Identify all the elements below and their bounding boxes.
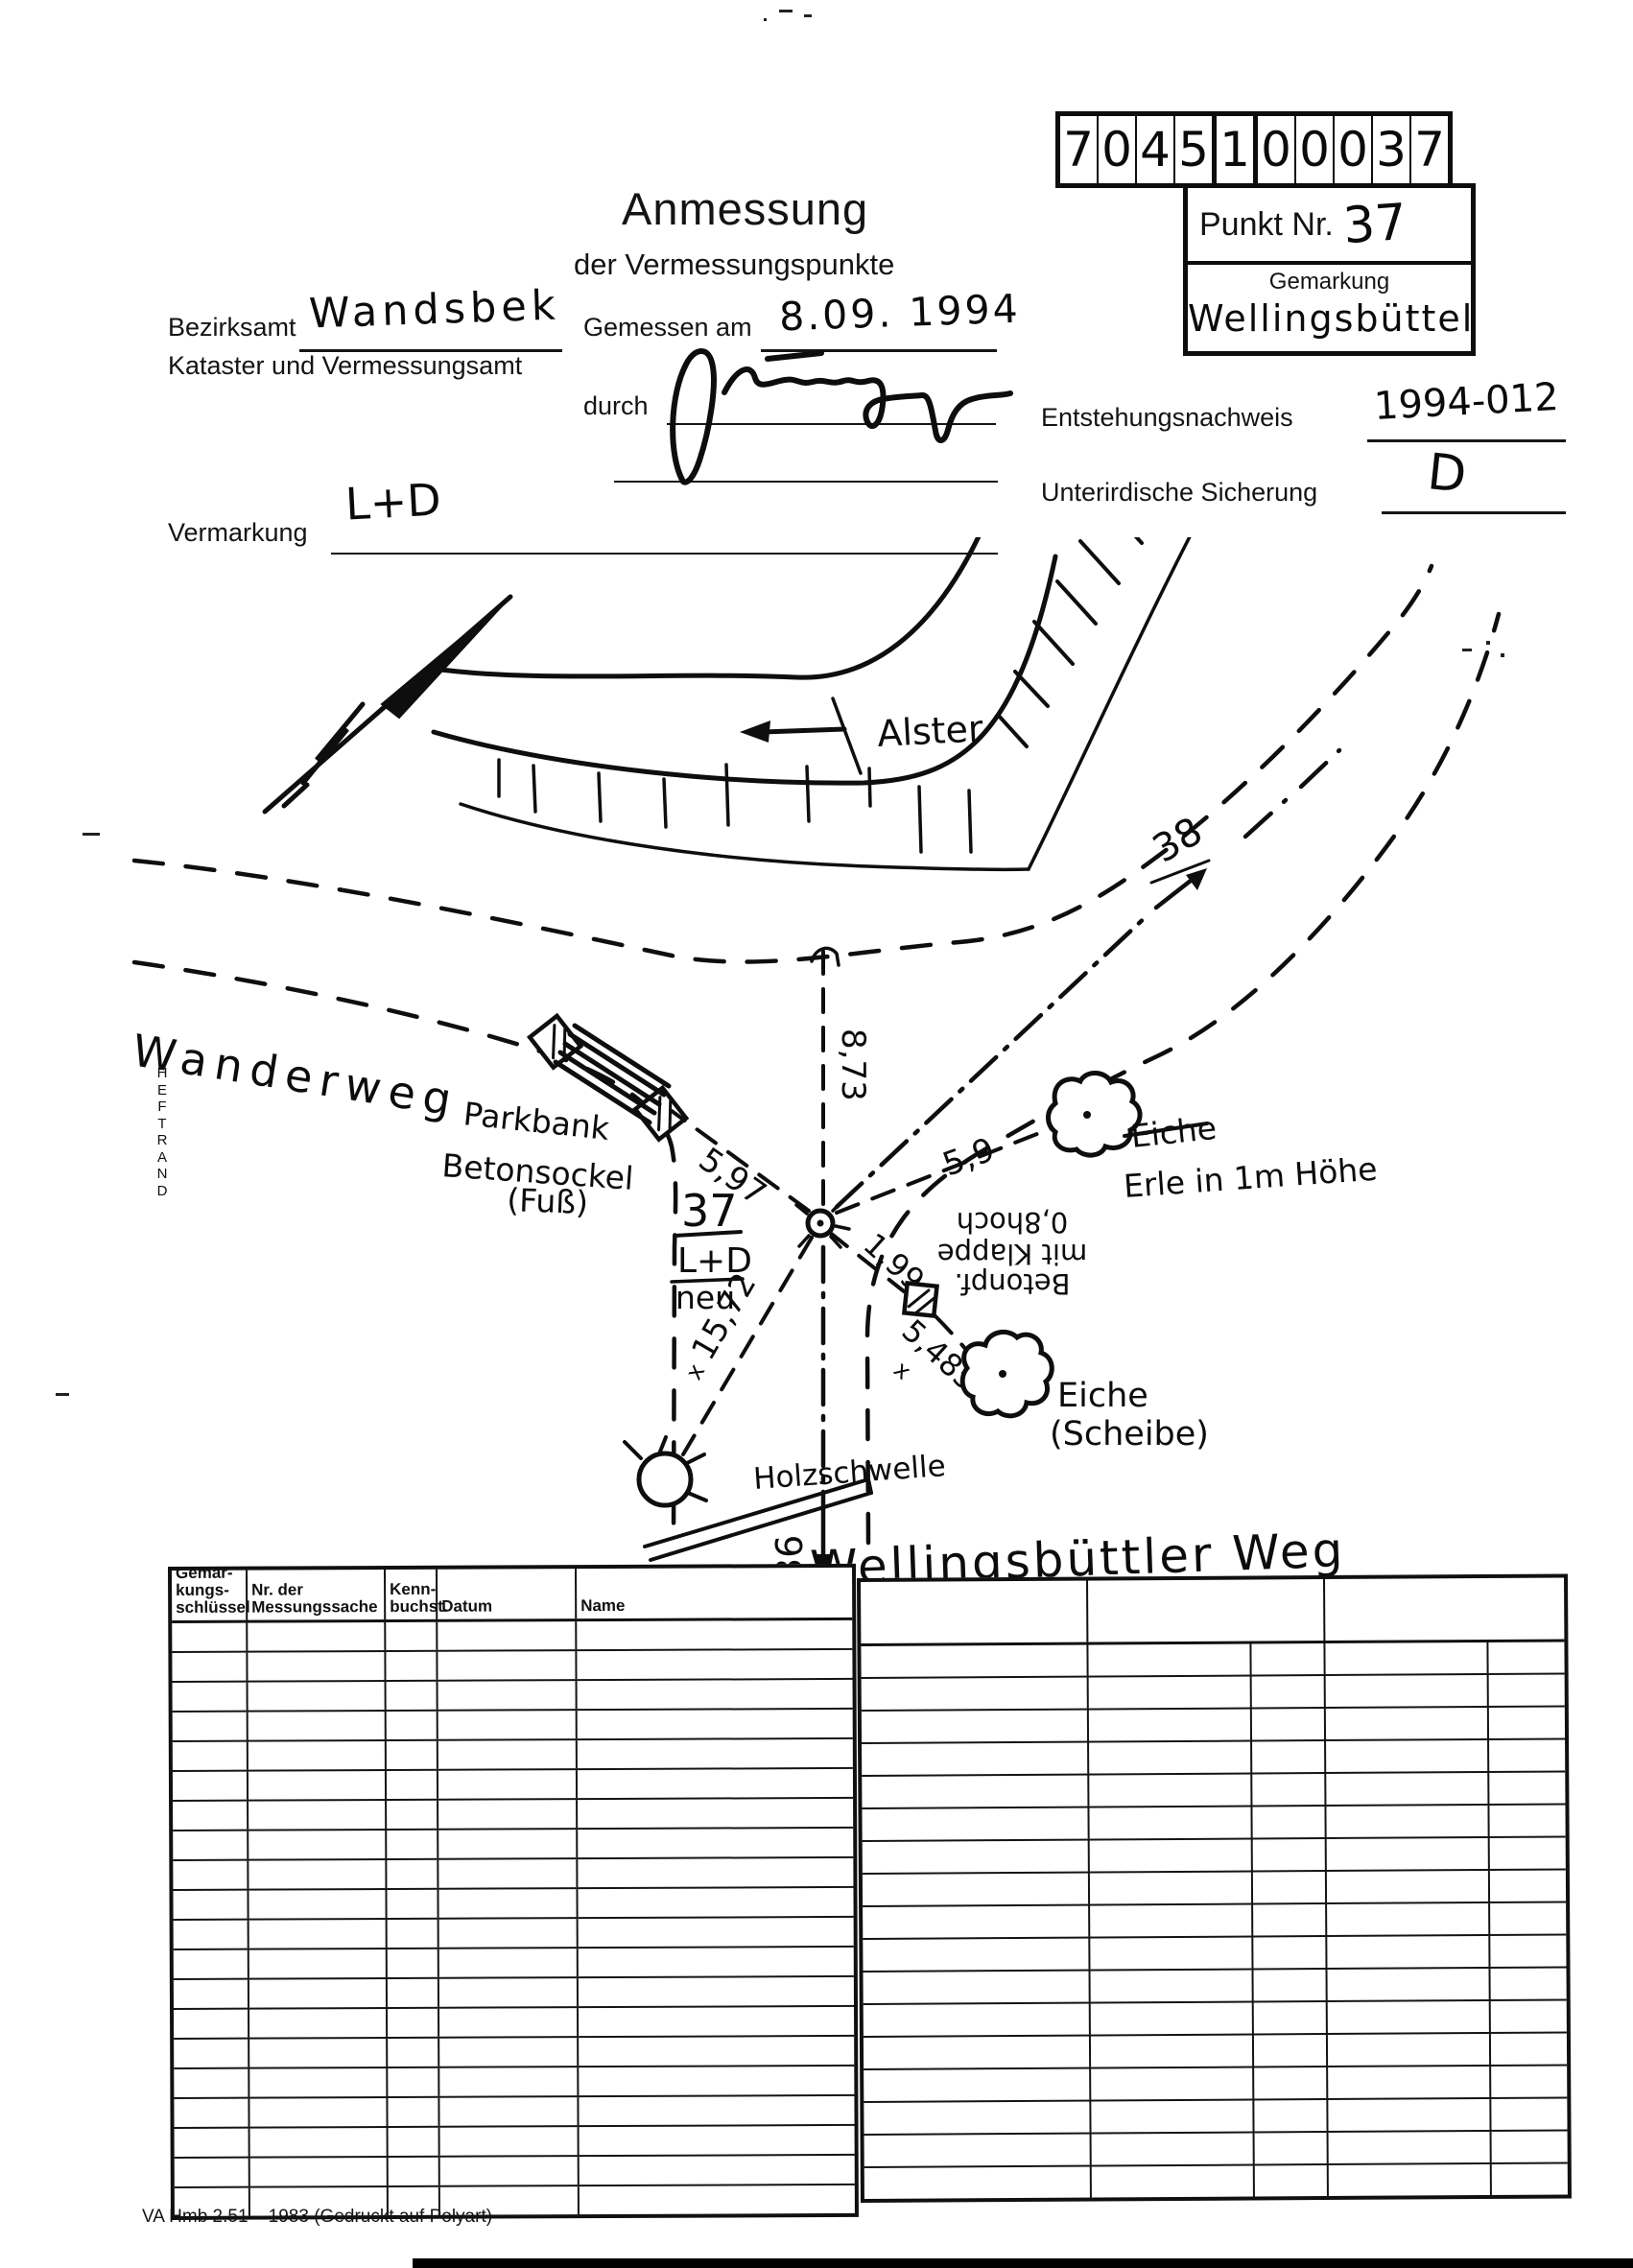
table-cell [1491,2066,1567,2096]
gemessen-am-value: 8.09. 1994 [778,286,1021,341]
table-row [173,1799,853,1831]
table-row [173,1769,853,1802]
table-cell [173,1891,248,1919]
table-cell [861,1645,1088,1677]
table-cell [1329,2164,1492,2196]
table-cell [578,1769,845,1798]
table-row [175,2126,855,2159]
wanderweg-label: Wanderweg [129,1025,462,1127]
code-digit: 0 [1294,116,1333,183]
table-cell [1489,1674,1565,1705]
table-cell [580,2185,847,2214]
table-row [173,1829,853,1861]
table-row [175,2156,855,2188]
street-name-label: Wellingsbüttler Weg [809,1523,1346,1583]
table-cell [1253,1904,1327,1935]
table-cell [1255,2165,1329,2196]
table-cell [1090,1872,1253,1903]
parkbank-label: Parkbank [461,1095,612,1147]
table-cell [1488,1642,1564,1672]
right-table-header [861,1577,1564,1645]
punkt-nr-label: Punkt Nr. [1199,206,1334,244]
table-row [174,1948,854,1980]
table-cell [388,2039,439,2067]
table-cell [1327,1903,1490,1935]
table-cell [248,1712,387,1740]
table-cell [439,2097,579,2126]
table-cell [174,1950,249,1978]
table-cell [579,2067,846,2095]
table-row [863,1870,1566,1906]
table-cell [578,1710,845,1738]
table-cell [864,2004,1091,2036]
table-cell [862,1678,1089,1710]
table-cell [174,1980,249,2008]
table-cell [387,1890,438,1918]
table-cell [579,1948,846,1976]
fuss-label: (Fuß) [507,1181,589,1221]
table-cell [173,1742,248,1770]
betonpf-line3: 0,8hoch [957,1206,1069,1239]
table-cell [1254,2002,1328,2033]
table-cell [577,1650,844,1679]
sicherung-underline [1382,511,1566,514]
form-subtitle: der Vermessungspunkte [574,248,894,282]
table-cell [1492,2131,1568,2162]
table-cell [248,1890,387,1919]
table-row [864,2163,1568,2198]
table-cell [248,1801,387,1830]
table-cell [1327,1871,1490,1902]
table-cell [579,2007,846,2036]
point-code-box: 7 0 4 5 1 0 0 0 3 7 [1055,111,1453,188]
table-cell [249,2098,388,2127]
table-cell [578,1739,845,1768]
table-cell [249,2068,388,2097]
table-cell [249,1920,388,1949]
point-number-label: 37 [681,1185,738,1237]
table-cell [438,1711,578,1739]
table-cell [175,2159,250,2186]
table-cell [388,2009,439,2037]
table-row [174,2037,854,2069]
right-table-body [861,1642,1568,2198]
table-cell [387,1741,438,1769]
table-cell [388,1979,439,2007]
table-row [862,1707,1565,1743]
table-cell [864,2135,1092,2166]
bezirksamt-value: Wandsbek [308,281,560,338]
table-cell [1254,2035,1328,2066]
table-cell [389,2158,440,2185]
table-cell [248,1860,387,1889]
table-cell [1255,2133,1329,2163]
unterirdische-sicherung-value: D [1425,443,1469,505]
table-cell [578,1799,845,1828]
left-table-body [172,1620,855,2216]
table-cell [578,1680,845,1709]
table-cell [173,1713,248,1740]
table-cell [1329,2132,1492,2163]
table-cell [172,1653,248,1681]
column-header: Datum [438,1569,577,1619]
gemarkung-label: Gemarkung [1188,269,1471,295]
table-cell [388,2098,439,2126]
table-cell [1490,1968,1566,1998]
column-header: Name [577,1568,844,1618]
table-row [864,2131,1568,2167]
table-cell [1491,2098,1567,2129]
table-cell [249,1949,388,1978]
column-header: Nr. derMessungssache [248,1570,386,1620]
table-cell [248,1622,386,1651]
table-row [174,2067,854,2099]
table-cell [578,1858,845,1887]
table-cell [248,1771,387,1800]
table-cell [1091,2002,1254,2034]
table-cell [439,1978,579,2007]
erle-label: Erle in 1m Höhe [1123,1150,1379,1205]
code-digit: 1 [1212,116,1253,183]
entstehungsnachweis-value: 1994-012 [1373,375,1560,429]
table-cell [1090,1904,1253,1936]
betonpfahl-note-upside-down: Betonpf. mit Klappe 0,8hoch [937,1206,1087,1300]
column-header: Kenn-buchst. [386,1570,438,1619]
table-row [173,1858,853,1891]
table-cell [862,1743,1089,1775]
table-cell [1489,1739,1565,1770]
river-alster [434,537,1236,869]
table-cell [1088,1643,1251,1675]
table-cell [174,2099,249,2127]
table-row [173,1888,853,1921]
scan-speck [764,18,767,21]
entstehung-underline [1367,439,1566,442]
table-cell [1326,1740,1489,1772]
north-arrow-icon [265,597,510,812]
table-cell [438,1621,577,1650]
table-cell [174,2010,249,2038]
table-cell [1091,1970,1254,2001]
table-cell [438,1770,578,1799]
table-cell [862,1808,1089,1840]
table-cell [1252,1709,1326,1739]
betonpf-line1: Betonpf. [955,1267,1071,1300]
betonpfahl-symbol [904,1284,936,1316]
erle-tree-symbol [1049,1073,1141,1155]
table-cell [1252,1741,1326,1772]
unterirdische-sicherung-label: Unterirdische Sicherung [1041,478,1317,508]
table-cell [438,1681,578,1710]
table-cell [1490,1837,1566,1868]
eiche-label: Eiche [1057,1377,1148,1415]
punkt-nr-value: 37 [1341,194,1408,255]
table-cell [1252,1774,1326,1805]
table-cell [1491,2000,1567,2031]
table-cell [864,2102,1091,2134]
table-cell [864,2167,1092,2199]
table-row [174,2007,854,2040]
column-header-empty [861,1581,1088,1643]
table-cell [387,1860,438,1888]
code-digit: 0 [1253,116,1294,183]
table-cell [249,2009,388,2038]
scan-speck [779,10,793,12]
table-cell [438,1889,578,1918]
code-digit: 0 [1097,116,1135,183]
table-cell [438,1800,578,1829]
table-cell [1089,1774,1252,1806]
table-cell [250,2158,389,2186]
column-header-empty [1088,1579,1325,1642]
scan-speck [804,14,812,17]
table-cell [1252,1807,1326,1837]
table-cell [248,1831,387,1859]
table-cell [1092,2133,1255,2164]
table-cell [439,1949,579,1977]
table-cell [1090,1839,1253,1871]
table-cell [1089,1807,1252,1838]
table-cell [174,2040,249,2067]
right-record-table [857,1573,1572,2203]
table-row [864,2098,1567,2135]
table-row [861,1642,1564,1678]
table-cell [864,2037,1091,2068]
table-row [864,2000,1567,2037]
table-cell [863,1841,1090,1873]
table-cell [1491,2033,1567,2064]
table-cell [1326,1675,1489,1707]
table-cell [173,1861,248,1889]
table-row [862,1805,1565,1841]
code-digit: 4 [1135,116,1173,183]
table-cell [1328,2099,1491,2131]
column-header-empty [1325,1577,1564,1641]
table-cell [248,1652,386,1681]
table-cell [173,1683,248,1711]
table-cell [578,1829,845,1857]
table-cell [388,1949,439,1977]
table-row [863,1902,1566,1939]
table-row [173,1680,853,1713]
form-id-footer: VA Hmb 2.51 – 1983 (Gedruckt auf Polyart… [142,2207,492,2228]
form-title: Anmessung [622,182,868,235]
table-cell [248,1682,387,1711]
table-cell [438,1740,578,1769]
table-cell [174,2069,249,2097]
flow-direction-arrow [740,721,844,743]
table-cell [1325,1642,1488,1674]
table-cell [388,2068,439,2096]
table-cell [387,1682,438,1710]
table-cell [1254,2067,1328,2098]
bezirksamt-label: Bezirksamt [168,313,296,343]
table-cell [863,1874,1090,1905]
holzschwelle-label: Holzschwelle [752,1449,947,1497]
gemarkung-value: Wellingsbüttel [1188,297,1471,340]
table-cell [1252,1676,1326,1707]
table-cell [578,1888,845,1917]
table-cell [386,1652,438,1680]
table-row [174,2096,854,2129]
table-cell [387,1712,438,1739]
table-cell [175,2129,250,2157]
table-row [172,1620,852,1653]
table-cell [1492,2163,1568,2194]
table-cell [172,1623,248,1651]
table-cell [1490,1902,1566,1933]
table-cell [864,2069,1091,2101]
table-cell [1328,2067,1491,2098]
code-digit: 7 [1409,116,1448,183]
table-cell [1254,2100,1328,2131]
code-digit: 7 [1060,116,1097,183]
point-new-label: neu [675,1279,735,1316]
table-cell [1326,1773,1489,1805]
table-cell [579,2096,846,2125]
table-row [862,1674,1565,1711]
table-cell [439,2067,579,2096]
table-row [864,2033,1567,2069]
table-cell [387,1801,438,1829]
tree-trunk-symbol [625,1437,706,1505]
table-cell [439,2038,579,2067]
embankment-hatches [998,537,1165,746]
wanderweg-path-edges [134,566,1499,1543]
table-cell [1090,1937,1253,1969]
table-cell [1328,2001,1491,2033]
table-cell [438,1830,578,1858]
table-cell [248,1741,387,1770]
scanned-survey-form: 7 0 4 5 1 0 0 0 3 7 Punkt Nr. 37 Gemarku… [0,0,1633,2268]
table-cell [1089,1741,1252,1773]
kataster-label: Kataster und Vermessungsamt [168,351,522,381]
check-mark-x: x [680,1359,710,1384]
entstehungsnachweis-label: Entstehungsnachweis [1041,403,1293,433]
river-label: Alster [876,707,984,755]
betonpf-line2: mit Klappe [937,1238,1087,1270]
table-cell [387,1771,438,1799]
table-cell [438,1859,578,1888]
table-cell [388,1920,439,1948]
table-cell [1253,1839,1327,1870]
table-cell [1489,1805,1565,1835]
table-cell [580,2126,847,2155]
point-number-box: Punkt Nr. 37 Gemarkung Wellingsbüttel [1183,183,1476,356]
table-row [173,1710,853,1742]
code-digit: 5 [1173,116,1212,183]
table-cell [580,2156,847,2185]
table-cell [439,1919,579,1948]
eiche-tree-symbol [962,1332,1052,1415]
table-cell [862,1776,1089,1807]
table-cell [579,2037,846,2066]
table-row [864,1968,1567,2004]
column-header: Gemar-kungs-schlüssel [172,1571,248,1620]
code-digit: 3 [1371,116,1409,183]
table-cell [173,1772,248,1800]
table-cell [1489,1707,1565,1737]
table-cell [439,2008,579,2037]
point-mark-label: L+D [677,1241,752,1281]
table-cell [173,1802,248,1830]
table-cell [1326,1806,1489,1837]
table-row [863,1837,1566,1874]
table-cell [1253,1937,1327,1968]
table-cell [440,2157,580,2185]
table-cell [174,1921,249,1949]
table-cell [1091,2035,1254,2067]
distance-erle: 5,9 [937,1130,999,1184]
check-mark-x: x [888,1356,916,1385]
left-table-header: Gemar-kungs-schlüssel Nr. derMessungssac… [172,1568,852,1623]
table-cell [577,1620,844,1649]
table-row [174,1977,854,2010]
table-row [862,1772,1565,1808]
table-cell [1089,1676,1252,1708]
table-cell [1490,1935,1566,1966]
table-cell [1091,2100,1254,2132]
table-cell [1092,2165,1255,2197]
eiche-scheibe-label: (Scheibe) [1050,1415,1209,1453]
table-cell [863,1906,1090,1938]
table-row [172,1650,852,1683]
distance-river: 8,73 [834,1028,872,1101]
table-cell [1327,1838,1490,1870]
table-cell [1490,1870,1566,1901]
table-cell [249,1979,388,2008]
table-cell [1251,1643,1325,1674]
table-row [862,1739,1565,1776]
table-cell [1326,1708,1489,1739]
table-cell [438,1651,577,1680]
table-cell [579,1977,846,2006]
table-cell [249,2039,388,2067]
table-cell [440,2127,580,2156]
left-record-table: Gemar-kungs-schlüssel Nr. derMessungssac… [168,1564,859,2220]
table-cell [1328,1969,1491,2000]
signature [633,338,1017,491]
survey-sketch-map: Alster Wanderweg Parkbank Bet [96,537,1593,1583]
table-cell [863,1939,1090,1971]
table-row [863,1935,1566,1972]
scan-edge-bar [413,2258,1633,2268]
table-cell [579,1918,846,1947]
table-row [173,1739,853,1772]
table-cell [389,2128,440,2156]
table-cell [1328,2034,1491,2066]
code-digit: 0 [1333,116,1371,183]
scan-speck [56,1393,69,1396]
table-cell [864,1972,1091,2003]
table-cell [173,1831,248,1859]
table-cell [1253,1872,1327,1902]
table-cell [1089,1709,1252,1740]
table-cell [386,1622,438,1650]
table-row [864,2066,1567,2102]
table-cell [1327,1936,1490,1968]
vermarkung-value: L+D [344,473,442,530]
table-row [174,1918,854,1950]
table-cell [1489,1772,1565,1803]
table-cell [862,1711,1089,1742]
table-cell [1091,2067,1254,2099]
table-cell [387,1831,438,1858]
table-cell [250,2128,389,2157]
table-cell [1254,1970,1328,2000]
